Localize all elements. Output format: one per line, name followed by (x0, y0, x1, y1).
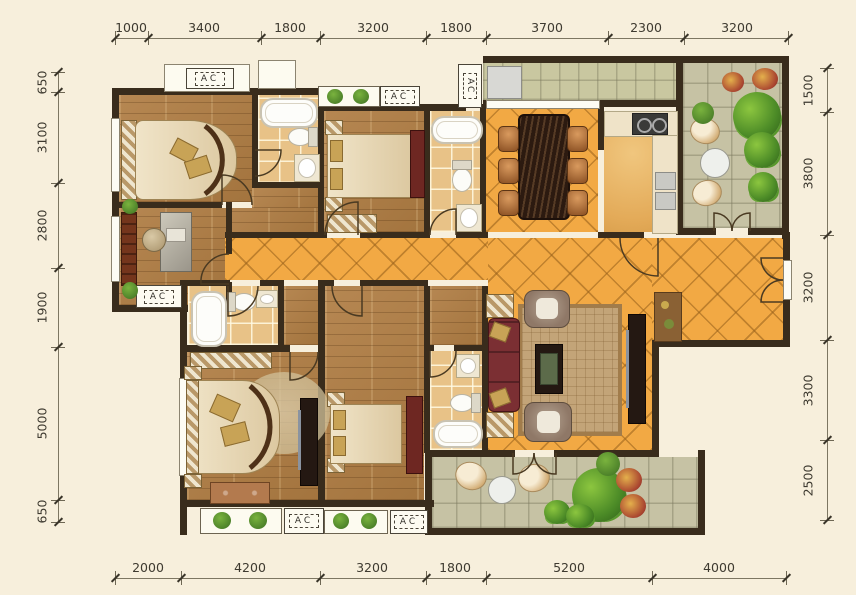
door-arc (761, 280, 783, 302)
dim-label: 1800 (268, 20, 312, 35)
door-arc (714, 213, 732, 231)
dim-label: 1900 (35, 286, 50, 330)
bed-canopy-arc (250, 386, 270, 468)
dim-label: 1800 (434, 20, 478, 35)
floor-plan-canvas: AC AC AC AC AC AC (0, 0, 856, 595)
dim-label: 1800 (433, 560, 477, 575)
bed-canopy-arc (205, 126, 222, 194)
dim-label: 650 (35, 490, 50, 534)
dim-label: 4000 (697, 560, 741, 575)
dim-label: 3800 (801, 152, 816, 196)
door-arc (255, 150, 281, 176)
door-arc (222, 175, 252, 205)
dimension-line-left (58, 72, 59, 522)
door-swings-layer (0, 0, 856, 595)
dim-label: 1000 (109, 20, 153, 35)
door-arc (325, 202, 358, 235)
dim-label: 3100 (35, 116, 50, 160)
door-arc (332, 286, 362, 316)
door-arc (430, 209, 456, 235)
dim-label: 3700 (525, 20, 569, 35)
dim-label: 2500 (801, 459, 816, 503)
dim-label: 3400 (182, 20, 226, 35)
dim-label: 3300 (801, 369, 816, 413)
dim-label: 3200 (351, 20, 395, 35)
door-arc (732, 213, 750, 231)
dim-label: 2800 (35, 204, 50, 248)
door-arc (761, 258, 783, 280)
dimension-line-right (827, 68, 828, 520)
dim-label: 2300 (624, 20, 668, 35)
door-arc (620, 238, 658, 276)
dim-label: 4200 (228, 560, 272, 575)
door-arc (290, 352, 318, 380)
door-arc (430, 351, 456, 377)
dim-label: 5000 (35, 402, 50, 446)
door-arc (534, 453, 556, 474)
door-arc (513, 453, 534, 474)
dimension-line-top (115, 38, 788, 39)
door-arc (228, 286, 258, 316)
dim-label: 3200 (350, 560, 394, 575)
dim-label: 650 (35, 61, 50, 105)
dim-label: 2000 (126, 560, 170, 575)
dim-label: 5200 (547, 560, 591, 575)
dimension-line-bottom (115, 578, 786, 579)
dim-label: 3200 (715, 20, 759, 35)
door-arc (201, 254, 229, 284)
dim-label: 3200 (801, 266, 816, 310)
dim-label: 1500 (801, 69, 816, 113)
